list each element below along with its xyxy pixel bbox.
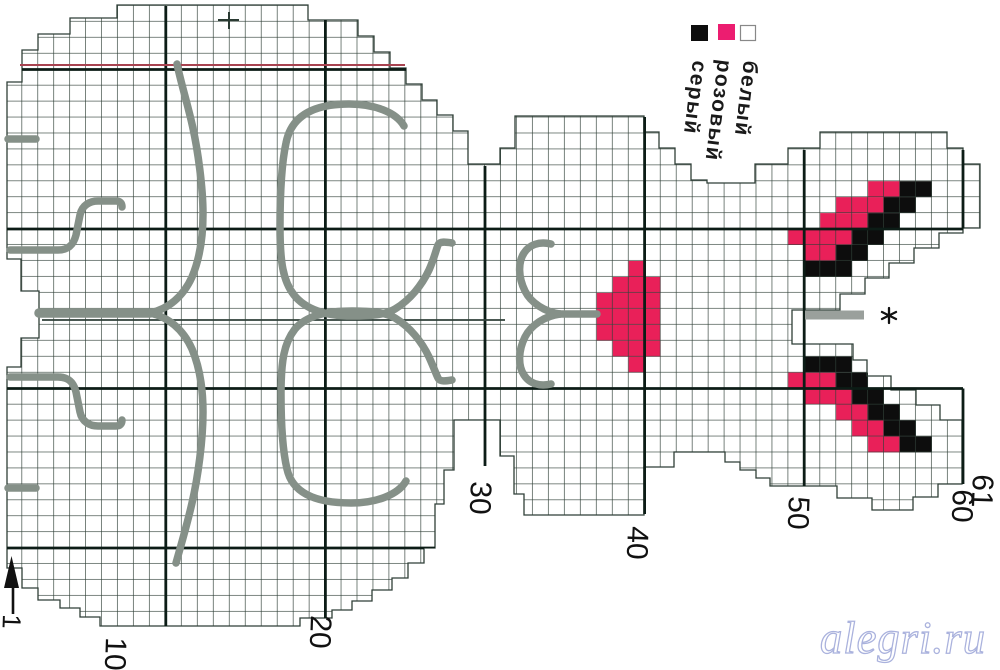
svg-text:20: 20: [303, 615, 337, 650]
svg-text:1: 1: [0, 614, 27, 630]
svg-text:40: 40: [620, 526, 654, 561]
svg-text:61: 61: [965, 474, 999, 509]
svg-text:30: 30: [463, 481, 497, 516]
svg-text:alegri.ru: alegri.ru: [820, 612, 986, 663]
svg-text:10: 10: [98, 637, 132, 670]
svg-text:50: 50: [781, 496, 815, 531]
